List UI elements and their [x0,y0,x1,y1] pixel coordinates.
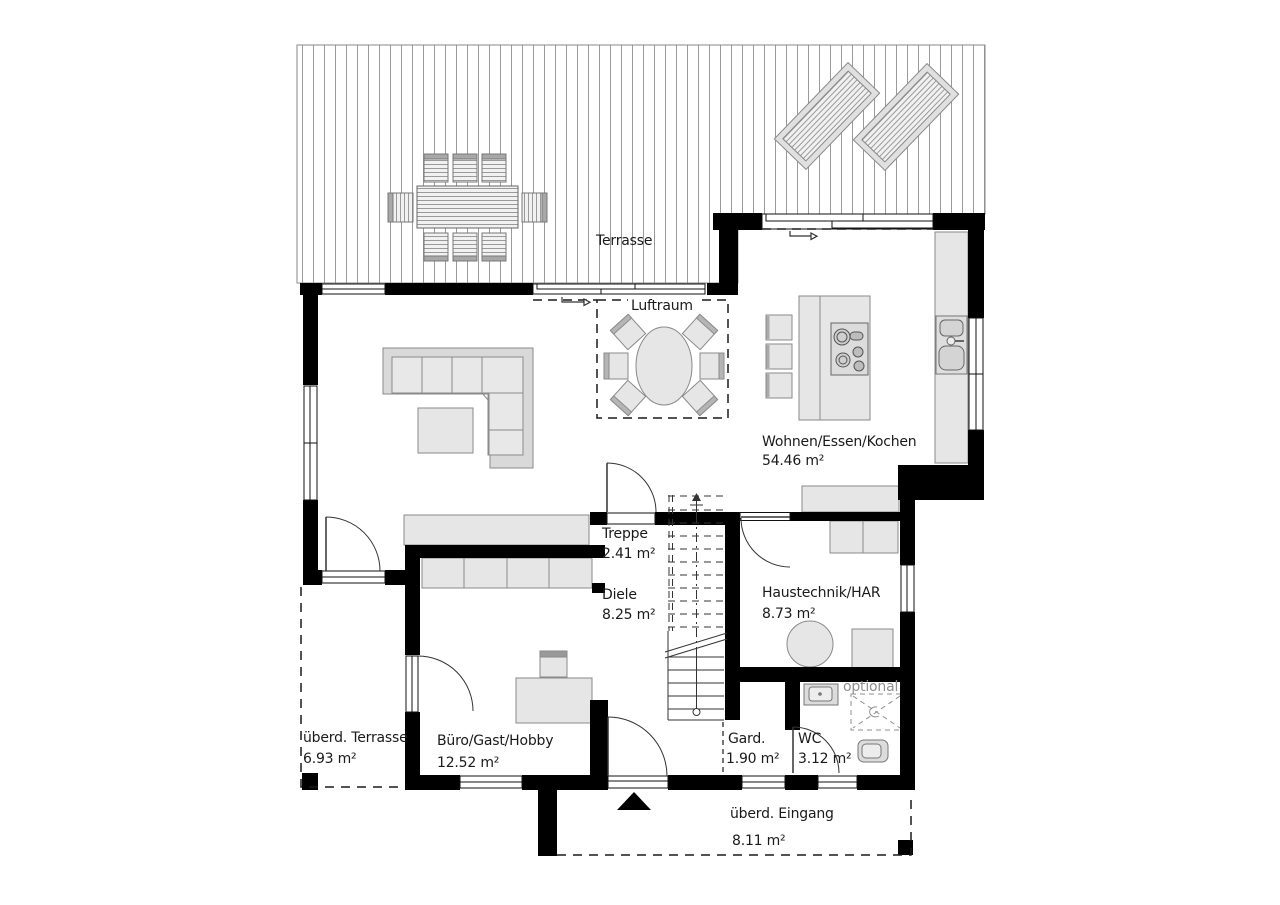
room-label-buero: Büro/Gast/Hobby [437,733,553,749]
room-area-diele: 8.25 m² [602,607,655,623]
kitchen-furniture [766,232,968,463]
room-label-treppe: Treppe [602,526,648,542]
room-area-wohnen: 54.46 m² [762,453,824,469]
room-label-haustechnik: Haustechnik/HAR [762,585,880,601]
room-label-ueberdachte-terrasse: überd. Terrasse [303,730,408,746]
room-label-wohnen: Wohnen/Essen/Kochen [762,434,916,450]
room-area-garderobe: 1.90 m² [726,751,779,767]
annotation-optional: optional [843,679,898,695]
dining-set-luftraum [604,314,724,415]
room-label-wc: WC [798,731,821,747]
room-area-treppe: 2.41 m² [602,546,655,562]
room-area-buero: 12.52 m² [437,755,499,771]
room-area-ueberdachte-terrasse: 6.93 m² [303,751,356,767]
room-area-haustechnik: 8.73 m² [762,606,815,622]
room-label-luftraum: Luftraum [628,298,696,314]
floor-plan: Terrasse Luftraum Wohnen/Essen/Kochen 54… [0,0,1280,905]
floor-plan-drawing [0,0,1280,905]
room-area-ueberdachter-eingang: 8.11 m² [732,833,785,849]
room-label-garderobe: Gard. [728,731,765,747]
entrance-arrow-icon [617,792,651,810]
room-area-wc: 3.12 m² [798,751,851,767]
staircase [665,493,727,720]
room-label-ueberdachter-eingang: überd. Eingang [730,806,834,822]
room-label-diele: Diele [602,587,637,603]
room-label-terrasse: Terrasse [596,233,652,249]
office-furniture [422,558,592,723]
